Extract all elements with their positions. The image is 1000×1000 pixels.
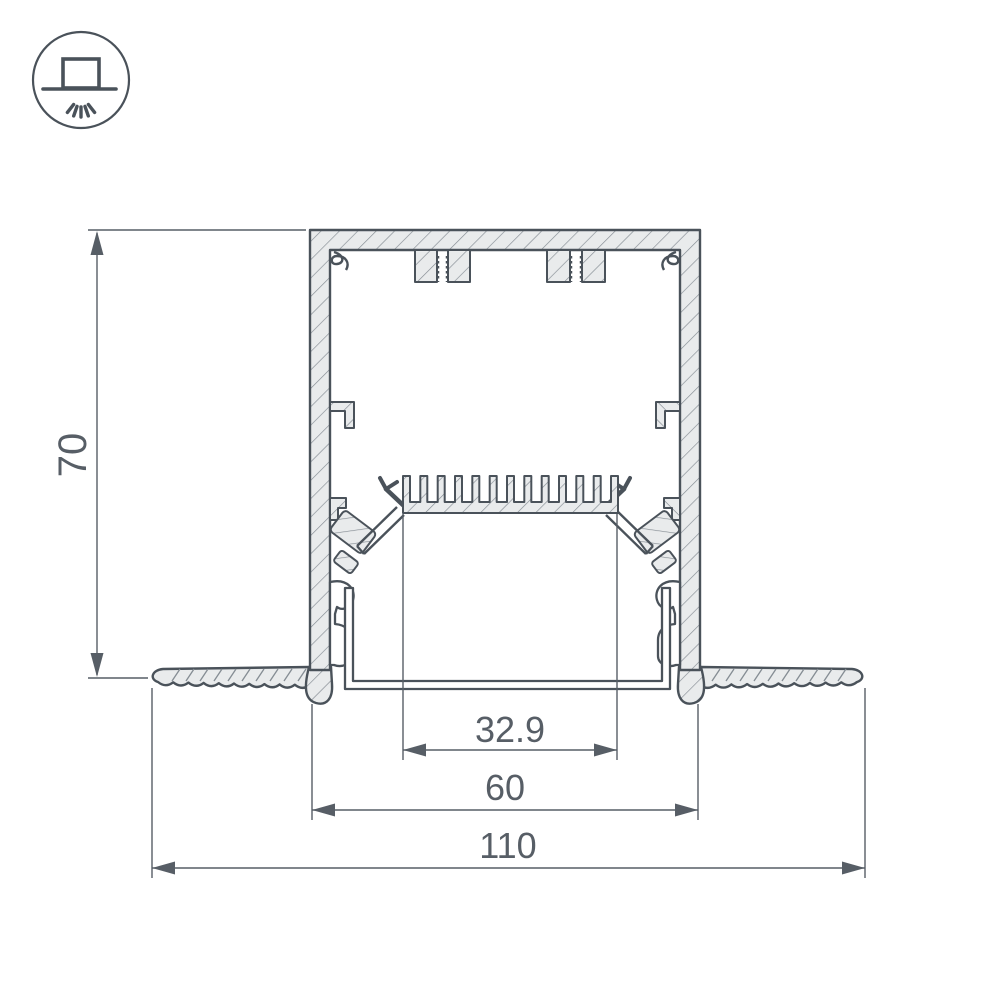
profile-foot-left — [306, 667, 332, 704]
dimension-height-70: 70 — [51, 230, 306, 678]
wall-hook — [330, 402, 354, 428]
heatsink-wing-prongs — [380, 478, 397, 489]
spring-squiggle — [332, 252, 348, 270]
dimension-label-32-9: 32.9 — [475, 709, 545, 750]
diffuser-tray — [345, 588, 670, 689]
profile-cross-section-drawing: 70 32.9 60 110 — [0, 0, 1000, 1000]
screw-boss-tabs — [415, 250, 605, 282]
clip-block-small — [333, 550, 359, 574]
mounting-flange-left — [153, 667, 310, 688]
heatsink-finned-plate — [403, 476, 618, 513]
dimension-label-70: 70 — [51, 433, 95, 478]
dimension-window-32-9: 32.9 — [403, 514, 617, 760]
dimension-label-110: 110 — [479, 825, 536, 866]
mounting-flange-right — [700, 667, 862, 688]
heatsink-wing — [386, 489, 404, 506]
profile-shell — [310, 230, 700, 670]
dimension-label-60: 60 — [485, 767, 525, 808]
technical-drawing-page: 70 32.9 60 110 — [0, 0, 1000, 1000]
inner-features-left — [329, 252, 404, 666]
profile-foot-right — [678, 667, 704, 704]
